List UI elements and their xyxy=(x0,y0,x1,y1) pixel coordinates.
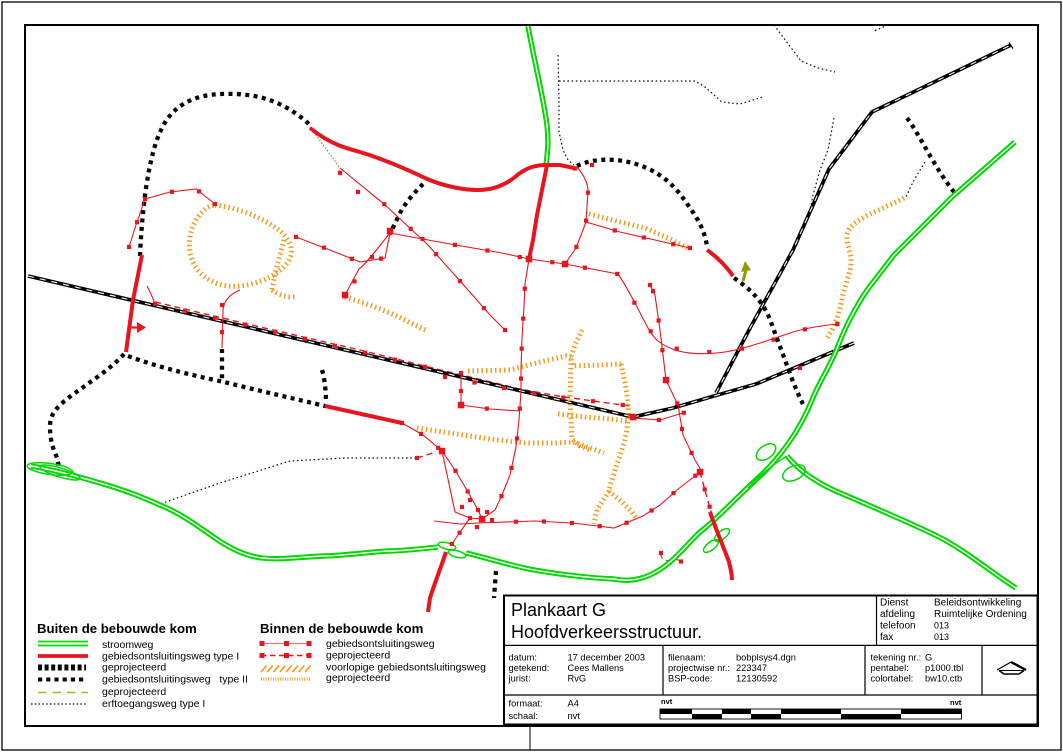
svg-text:013: 013 xyxy=(934,621,949,631)
svg-text:12130592: 12130592 xyxy=(736,674,777,684)
svg-text:colortabel:: colortabel: xyxy=(871,674,914,684)
svg-text:getekend:: getekend: xyxy=(509,663,550,673)
svg-text:BSP-code:: BSP-code: xyxy=(668,674,712,684)
svg-text:stroomweg: stroomweg xyxy=(102,639,154,651)
svg-text:Dienst: Dienst xyxy=(880,598,909,609)
svg-text:bobplsys4.dgn: bobplsys4.dgn xyxy=(736,653,796,663)
svg-text:gebiedsontsluitingsweg type: gebiedsontsluitingsweg type II xyxy=(102,674,248,686)
svg-text:erftoegangsweg type I: erftoegangsweg type I xyxy=(102,698,205,710)
svg-text:Cees Mallens: Cees Mallens xyxy=(568,663,625,673)
svg-text:Plankaart G: Plankaart G xyxy=(511,600,606,620)
svg-text:223347: 223347 xyxy=(736,663,767,673)
svg-text:geprojecteerd: geprojecteerd xyxy=(326,650,390,662)
svg-text:gebiedsontsluitingsweg: gebiedsontsluitingsweg xyxy=(326,638,435,650)
svg-text:tekening nr.:: tekening nr.: xyxy=(871,653,922,663)
svg-text:projectwise nr.:: projectwise nr.: xyxy=(668,663,730,673)
svg-text:nvt: nvt xyxy=(568,711,581,721)
svg-text:telefoon: telefoon xyxy=(880,621,916,632)
svg-text:17 december 2003: 17 december 2003 xyxy=(568,653,646,663)
svg-text:RvG: RvG xyxy=(568,674,587,684)
svg-text:schaal:: schaal: xyxy=(509,711,538,721)
svg-text:datum:: datum: xyxy=(509,653,537,663)
svg-text:geprojecteerd: geprojecteerd xyxy=(102,686,166,698)
svg-text:geprojecteerd: geprojecteerd xyxy=(326,672,390,684)
svg-text:afdeling: afdeling xyxy=(880,609,915,620)
svg-text:013: 013 xyxy=(934,632,949,642)
svg-text:p1000.tbl: p1000.tbl xyxy=(925,663,963,673)
svg-text:pentabel:: pentabel: xyxy=(871,663,909,673)
svg-text:Binnen de bebouwde kom: Binnen de bebouwde kom xyxy=(260,621,423,636)
svg-text:formaat:: formaat: xyxy=(509,699,543,709)
svg-text:G: G xyxy=(925,653,932,663)
svg-text:nvt: nvt xyxy=(661,697,673,706)
svg-text:Hoofdverkeersstructuur.: Hoofdverkeersstructuur. xyxy=(511,622,702,642)
svg-text:Ruimtelijke Ordening: Ruimtelijke Ordening xyxy=(934,609,1027,620)
svg-text:Beleidsontwikkeling: Beleidsontwikkeling xyxy=(934,598,1021,609)
svg-text:jurist:: jurist: xyxy=(508,674,531,684)
svg-text:bw10.ctb: bw10.ctb xyxy=(925,674,962,684)
svg-text:geprojecteerd: geprojecteerd xyxy=(102,662,166,674)
svg-text:fax: fax xyxy=(880,632,893,643)
svg-text:A4: A4 xyxy=(568,699,579,709)
svg-text:nvt: nvt xyxy=(950,698,962,707)
svg-text:filenaam:: filenaam: xyxy=(668,653,706,663)
svg-text:Buiten de bebouwde kom: Buiten de bebouwde kom xyxy=(37,621,197,636)
